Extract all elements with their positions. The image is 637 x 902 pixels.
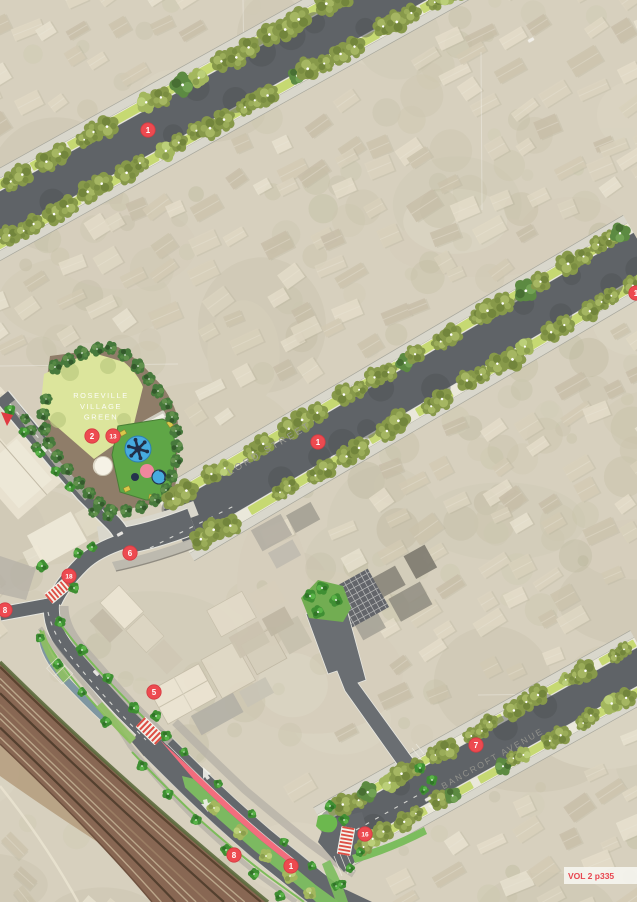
svg-text:GREEN: GREEN (84, 413, 118, 422)
svg-text:13: 13 (109, 433, 117, 440)
svg-text:18: 18 (65, 573, 73, 580)
svg-text:6: 6 (128, 549, 133, 558)
svg-text:VOL 2 p335: VOL 2 p335 (568, 871, 614, 881)
svg-text:1: 1 (146, 126, 151, 135)
svg-text:5: 5 (152, 688, 157, 697)
svg-text:1: 1 (289, 862, 294, 871)
svg-text:7: 7 (474, 741, 479, 750)
svg-text:16: 16 (361, 831, 369, 838)
svg-text:1: 1 (316, 438, 321, 447)
svg-text:8: 8 (3, 606, 8, 615)
svg-text:2: 2 (90, 432, 95, 441)
svg-text:VILLAGE: VILLAGE (80, 402, 122, 411)
svg-text:8: 8 (232, 851, 237, 860)
svg-text:ROSEVILLE: ROSEVILLE (73, 391, 128, 400)
